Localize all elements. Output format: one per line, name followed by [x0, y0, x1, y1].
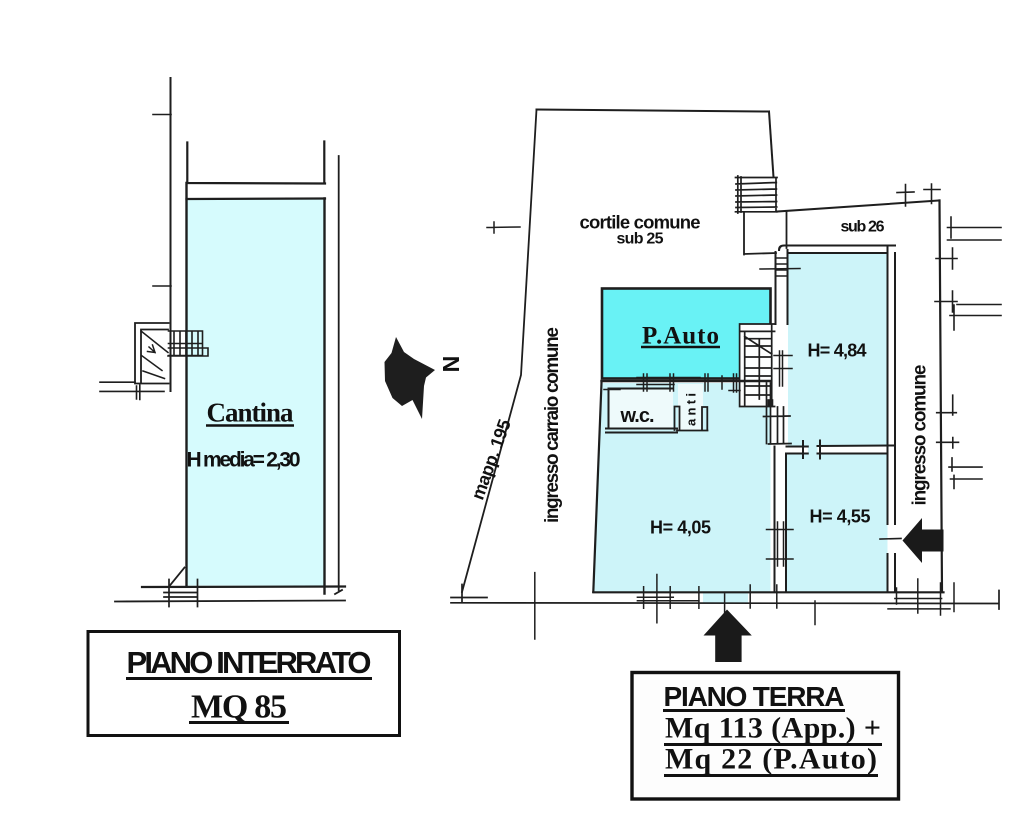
svg-text:Mq 22 (P.Auto): Mq 22 (P.Auto): [665, 743, 877, 776]
svg-text:sub 25: sub 25: [617, 231, 664, 248]
svg-text:N: N: [438, 356, 464, 373]
svg-text:P.Auto: P.Auto: [642, 323, 719, 350]
svg-text:w.c.: w.c.: [620, 405, 655, 427]
svg-text:PIANO TERRA: PIANO TERRA: [664, 681, 845, 712]
svg-text:H= 4,84: H= 4,84: [808, 341, 867, 361]
svg-text:Cantina: Cantina: [207, 398, 295, 428]
svg-text:sub 26: sub 26: [841, 219, 885, 236]
svg-text:PIANO INTERRATO: PIANO INTERRATO: [127, 645, 372, 680]
svg-text:ingresso carraio comune: ingresso carraio comune: [542, 327, 563, 523]
svg-text:cortile comune: cortile comune: [580, 212, 701, 233]
svg-text:H media= 2,30: H media= 2,30: [187, 449, 301, 472]
svg-text:H= 4,05: H= 4,05: [650, 518, 711, 538]
svg-text:H= 4,55: H= 4,55: [810, 507, 871, 527]
svg-text:Mq 113 (App.) +: Mq 113 (App.) +: [665, 712, 881, 745]
svg-text:ingresso comune: ingresso comune: [910, 365, 931, 506]
svg-text:MQ 85: MQ 85: [191, 689, 287, 726]
